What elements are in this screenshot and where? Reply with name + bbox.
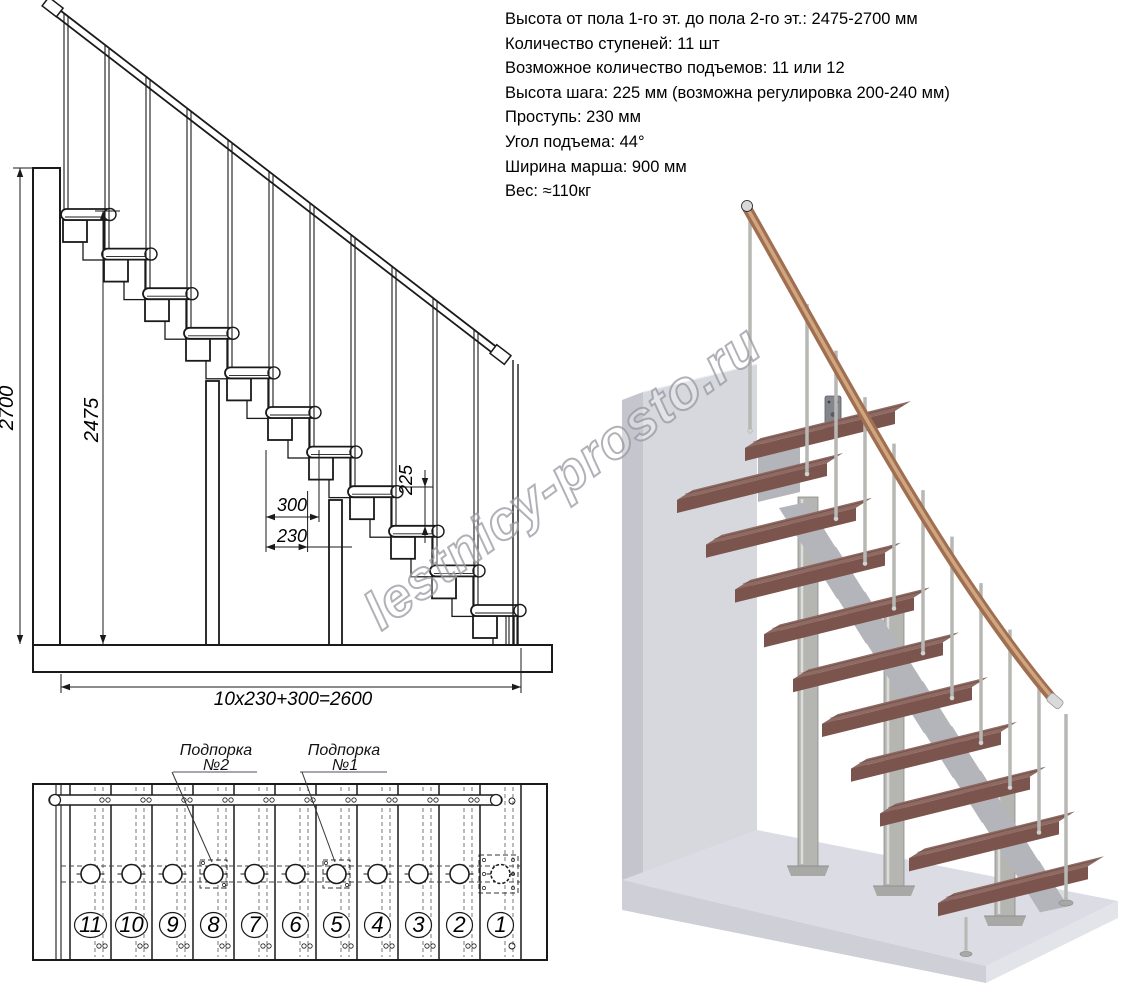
front-leg-foot	[960, 952, 972, 957]
plan-step-number: 1	[494, 912, 506, 937]
stringer-module	[186, 339, 210, 361]
support-post-2	[206, 381, 219, 645]
support-2-number: №2	[203, 757, 229, 774]
stringer-module	[350, 497, 374, 519]
plan-step-number: 2	[452, 912, 465, 937]
dim-tread-depth: 300	[277, 495, 307, 515]
baluster-joint	[979, 740, 984, 745]
stringer-module	[268, 418, 292, 440]
plan-post-circle	[409, 865, 428, 884]
elevation-drawing	[13, 0, 552, 693]
tread-end-ferrule	[227, 327, 239, 339]
baluster-joint	[892, 606, 897, 611]
plan-step-number: 8	[207, 912, 220, 937]
staircase-drawing-canvas: 1110987654321 2700 2475 225 300 230 10x2…	[0, 0, 1144, 983]
plan-step-number: 4	[371, 912, 383, 937]
page: Высота от пола 1-го эт. до пола 2-го эт.…	[0, 0, 1144, 983]
stringer-module	[63, 220, 87, 242]
plan-step-number: 3	[412, 912, 425, 937]
tread-end-ferrule	[186, 288, 198, 300]
floor-post-middle-base	[873, 886, 915, 896]
plan-view: 1110987654321	[33, 772, 547, 960]
wall-section	[33, 168, 60, 672]
handrail-line	[52, 4, 503, 352]
baluster-joint	[863, 561, 868, 566]
dim-height-to-top-tread: 2475	[81, 397, 103, 443]
tread-end-ferrule	[268, 367, 280, 379]
plan-step-number: 7	[248, 912, 261, 937]
plan-post-circle	[245, 865, 264, 884]
dim-rise: 225	[396, 464, 416, 496]
dim-arrow	[266, 544, 275, 550]
dim-arrow	[17, 635, 23, 644]
support-post-1	[329, 500, 342, 645]
dim-arrow	[61, 684, 70, 690]
plan-post-circle	[450, 865, 469, 884]
floor-post-upper-base	[787, 866, 829, 876]
baluster-joint	[950, 696, 955, 701]
floor-post-lower-base	[984, 916, 1026, 926]
dim-total-height: 2700	[0, 386, 18, 432]
plan-post-circle	[491, 865, 510, 884]
plan-step-number: 10	[119, 912, 144, 937]
tread-end-ferrule	[514, 605, 526, 617]
baluster-joint	[921, 651, 926, 656]
plan-post-circle	[204, 865, 223, 884]
plan-step-number: 6	[289, 912, 302, 937]
stringer-module	[309, 458, 333, 480]
baluster-joint	[748, 429, 753, 434]
plan-step-number: 11	[79, 912, 102, 937]
plan-post-circle	[163, 865, 182, 884]
handrail-top-cap	[42, 0, 63, 17]
handrail-top-ferrule	[742, 201, 753, 212]
plan-step-number: 5	[330, 912, 343, 937]
plan-step-number: 9	[166, 912, 178, 937]
baluster-joint	[834, 516, 839, 521]
stringer-module	[145, 299, 169, 321]
bracket-screw	[828, 401, 831, 404]
dim-arrow	[310, 514, 319, 520]
tread-end-ferrule	[350, 446, 362, 458]
support-1-number: №1	[332, 757, 358, 774]
dim-total-run: 10x230+300=2600	[214, 689, 373, 710]
dim-arrow	[266, 514, 275, 520]
floor-base	[33, 645, 552, 672]
dim-arrow	[17, 168, 23, 177]
dim-arrow	[512, 684, 521, 690]
baluster-joint	[1037, 830, 1042, 835]
tread-end-ferrule	[145, 248, 157, 260]
render-3d	[622, 201, 1118, 983]
plan-handrail-end	[50, 795, 61, 806]
handrail-end-cap	[490, 345, 511, 365]
end-post-foot	[1059, 900, 1073, 906]
stringer-module	[227, 378, 251, 400]
stringer-module	[104, 260, 128, 282]
dim-arrow	[100, 635, 106, 644]
plan-post-circle	[327, 865, 346, 884]
plan-post-circle	[122, 865, 141, 884]
tread-end-ferrule	[309, 407, 321, 419]
tread-end-ferrule	[104, 209, 116, 221]
plan-post-circle	[286, 865, 305, 884]
plan-post-circle	[81, 865, 100, 884]
plan-post-circle	[368, 865, 387, 884]
baluster-joint	[1008, 785, 1013, 790]
dim-run: 230	[276, 526, 307, 546]
plan-handrail-end	[491, 795, 502, 806]
stringer-module	[473, 616, 497, 638]
baluster-joint	[805, 472, 810, 477]
